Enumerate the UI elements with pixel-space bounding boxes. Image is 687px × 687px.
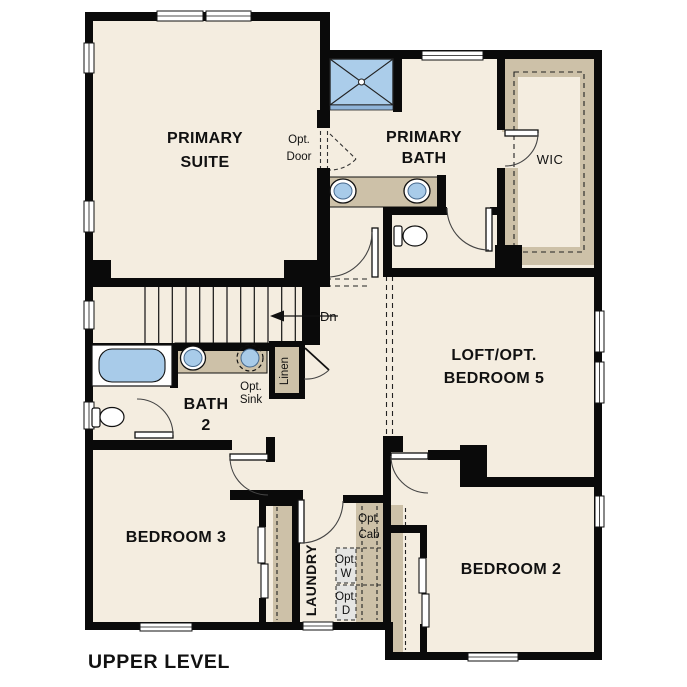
svg-text:BATH: BATH: [402, 150, 447, 167]
level-caption: UPPER LEVEL: [88, 651, 230, 673]
stairs-down-label: Dn: [320, 309, 337, 324]
opt-washer-label: Opt.: [335, 554, 357, 566]
bedroom2-door-leaf: [391, 453, 428, 459]
svg-text:W: W: [341, 568, 352, 580]
opt-cab-label: Opt.: [358, 513, 380, 525]
primary-bath-label: PRIMARY: [386, 129, 462, 146]
svg-text:Sink: Sink: [240, 394, 263, 406]
svg-text:Cab: Cab: [358, 529, 379, 541]
svg-text:SUITE: SUITE: [180, 154, 229, 171]
shower: [330, 59, 393, 110]
wic-label: WIC: [537, 152, 564, 167]
bedroom3-closet-shelf: [273, 505, 292, 622]
wic-door-leaf: [505, 130, 538, 136]
toilet-room-door-leaf: [486, 208, 492, 251]
svg-text:Door: Door: [287, 151, 312, 163]
bath2-label: BATH: [184, 396, 229, 413]
linen-label: Linen: [279, 357, 291, 385]
bath2-toilet: [92, 408, 124, 428]
floor-plan-page: PRIMARY SUITE Opt. Door PRIMARY BATH WIC…: [0, 0, 687, 687]
loft-label: LOFT/OPT.: [451, 347, 536, 364]
opt-sink-label: Opt.: [240, 381, 262, 393]
laundry-door-leaf: [298, 500, 304, 543]
bedroom3-door-leaf: [230, 454, 268, 460]
bedroom2-label: BEDROOM 2: [461, 561, 562, 578]
svg-text:2: 2: [201, 417, 210, 434]
floor-plan-drawing: PRIMARY SUITE Opt. Door PRIMARY BATH WIC…: [0, 0, 687, 687]
svg-text:BEDROOM 5: BEDROOM 5: [444, 370, 545, 387]
primary-suite-label: PRIMARY: [167, 130, 243, 147]
opt-dryer-label: Opt.: [335, 591, 357, 603]
bath2-tub: [92, 345, 172, 386]
primary-toilet: [394, 226, 427, 246]
svg-text:D: D: [342, 605, 350, 617]
bedroom3-label: BEDROOM 3: [126, 529, 227, 546]
opt-door-label: Opt.: [288, 134, 310, 146]
bath2-door-leaf: [135, 432, 173, 438]
hall-door-leaf: [372, 228, 378, 277]
laundry-label: LAUNDRY: [303, 544, 319, 616]
